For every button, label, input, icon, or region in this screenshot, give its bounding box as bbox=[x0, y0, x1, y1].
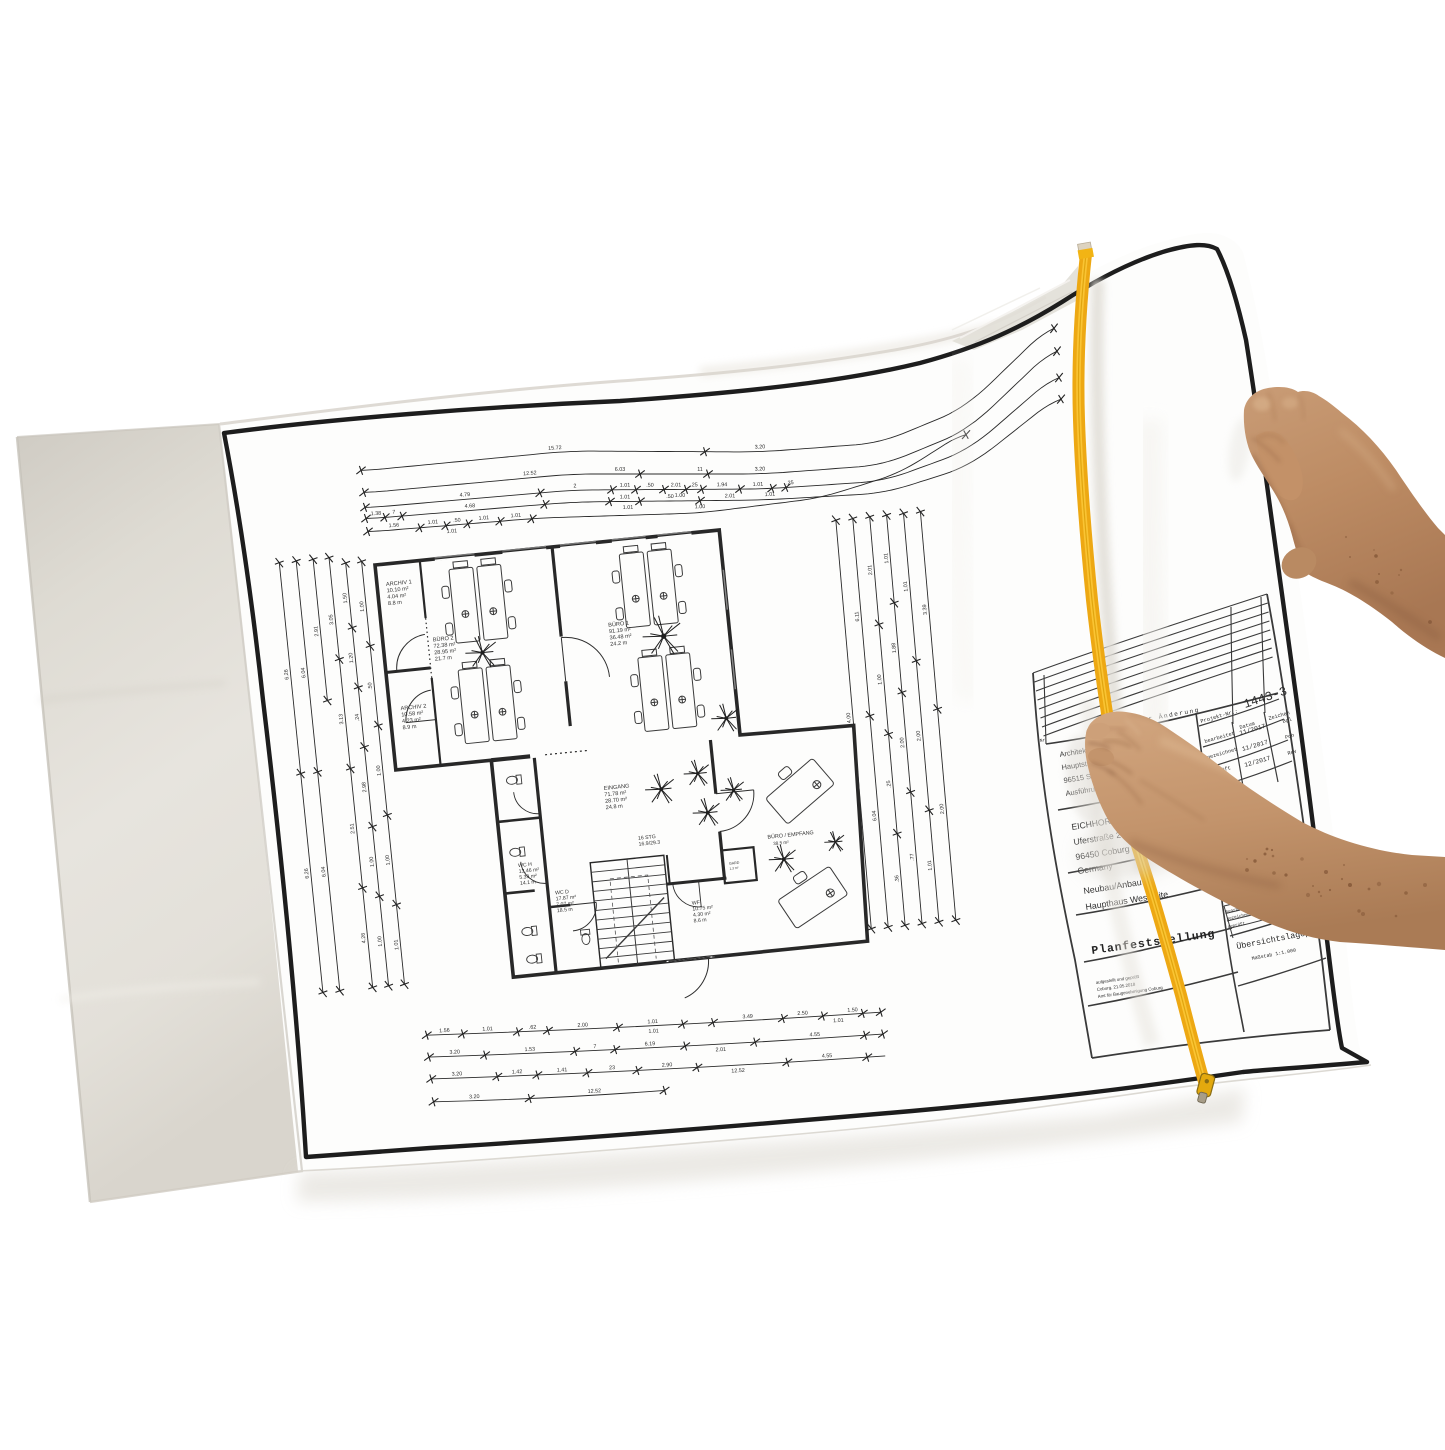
svg-text:6.04: 6.04 bbox=[871, 810, 878, 821]
svg-text:.25: .25 bbox=[690, 482, 698, 488]
svg-text:1.56: 1.56 bbox=[439, 1028, 450, 1035]
svg-text:6.03: 6.03 bbox=[615, 467, 626, 473]
svg-text:1.00: 1.00 bbox=[385, 855, 392, 866]
svg-text:1.01: 1.01 bbox=[648, 1028, 659, 1035]
svg-text:1.56: 1.56 bbox=[388, 522, 399, 529]
svg-text:12.52: 12.52 bbox=[731, 1068, 745, 1075]
svg-text:4.26: 4.26 bbox=[361, 932, 368, 943]
svg-text:2.01: 2.01 bbox=[715, 1047, 726, 1054]
svg-text:7: 7 bbox=[392, 510, 395, 516]
svg-text:.77: .77 bbox=[909, 853, 916, 861]
svg-text:.36: .36 bbox=[894, 875, 901, 883]
svg-text:1.42: 1.42 bbox=[512, 1069, 523, 1076]
svg-text:7: 7 bbox=[593, 1044, 596, 1050]
svg-text:4.55: 4.55 bbox=[809, 1032, 820, 1039]
svg-text:1.01: 1.01 bbox=[647, 1019, 658, 1026]
svg-text:2.90: 2.90 bbox=[662, 1062, 673, 1069]
svg-text:12.52: 12.52 bbox=[588, 1088, 602, 1095]
svg-text:.50: .50 bbox=[453, 518, 461, 525]
svg-text:2.00: 2.00 bbox=[899, 737, 906, 748]
svg-text:1.53: 1.53 bbox=[524, 1047, 535, 1054]
svg-text:1.00: 1.00 bbox=[675, 493, 686, 499]
svg-text:3.39: 3.39 bbox=[922, 604, 929, 615]
svg-text:1.01: 1.01 bbox=[478, 515, 489, 522]
svg-text:1.00: 1.00 bbox=[695, 504, 706, 510]
svg-text:2.98: 2.98 bbox=[361, 782, 368, 793]
svg-text:4.79: 4.79 bbox=[459, 492, 470, 499]
svg-text:6.26: 6.26 bbox=[304, 868, 311, 879]
svg-text:11: 11 bbox=[697, 467, 703, 473]
svg-text:1.01: 1.01 bbox=[833, 1018, 844, 1025]
svg-text:1.94: 1.94 bbox=[717, 482, 728, 488]
svg-text:3.49: 3.49 bbox=[742, 1014, 753, 1021]
svg-text:1.50: 1.50 bbox=[847, 1007, 858, 1014]
svg-text:1.50: 1.50 bbox=[342, 593, 349, 604]
svg-text:1.20: 1.20 bbox=[348, 652, 355, 663]
svg-text:.50: .50 bbox=[666, 494, 674, 500]
svg-text:3.20: 3.20 bbox=[449, 1049, 460, 1056]
svg-text:3.13: 3.13 bbox=[338, 714, 345, 725]
svg-text:1.00: 1.00 bbox=[359, 601, 366, 612]
svg-text:2: 2 bbox=[573, 483, 576, 489]
svg-text:.24: .24 bbox=[354, 713, 361, 721]
svg-text:2.00: 2.00 bbox=[939, 803, 946, 814]
svg-text:6.04: 6.04 bbox=[321, 866, 328, 877]
svg-text:.50: .50 bbox=[367, 682, 374, 690]
svg-text:1.38: 1.38 bbox=[371, 511, 382, 518]
svg-text:6.04: 6.04 bbox=[301, 667, 308, 678]
svg-text:2.91: 2.91 bbox=[313, 626, 320, 637]
svg-text:2.00: 2.00 bbox=[577, 1022, 588, 1029]
svg-text:23: 23 bbox=[609, 1065, 615, 1071]
svg-text:3.20: 3.20 bbox=[755, 444, 766, 450]
svg-text:2.01: 2.01 bbox=[725, 493, 736, 499]
svg-text:.50: .50 bbox=[646, 483, 654, 489]
svg-text:1.01: 1.01 bbox=[620, 494, 631, 500]
svg-text:6.26: 6.26 bbox=[284, 669, 291, 680]
svg-text:6.19: 6.19 bbox=[645, 1041, 656, 1048]
svg-text:1.01: 1.01 bbox=[903, 581, 910, 592]
svg-text:2.00: 2.00 bbox=[916, 730, 923, 741]
svg-text:6.11: 6.11 bbox=[854, 611, 861, 622]
svg-text:1.01: 1.01 bbox=[927, 860, 934, 871]
svg-text:.25: .25 bbox=[786, 480, 794, 486]
svg-text:.62: .62 bbox=[529, 1025, 537, 1031]
svg-text:1.01: 1.01 bbox=[623, 505, 634, 511]
svg-text:3.20: 3.20 bbox=[452, 1071, 463, 1078]
svg-text:2.51: 2.51 bbox=[350, 823, 357, 834]
svg-text:1.01: 1.01 bbox=[620, 483, 631, 489]
svg-text:4.68: 4.68 bbox=[464, 503, 475, 510]
svg-text:12.52: 12.52 bbox=[523, 470, 537, 477]
svg-text:1.41: 1.41 bbox=[557, 1067, 568, 1074]
svg-text:1.00: 1.00 bbox=[377, 936, 384, 947]
svg-text:1.00: 1.00 bbox=[877, 674, 884, 685]
svg-text:4.55: 4.55 bbox=[822, 1053, 833, 1060]
svg-text:1.01: 1.01 bbox=[427, 519, 438, 526]
svg-text:2.01: 2.01 bbox=[671, 482, 682, 488]
svg-text:3.20: 3.20 bbox=[755, 466, 766, 472]
svg-text:1.00: 1.00 bbox=[376, 765, 383, 776]
svg-text:1.01: 1.01 bbox=[482, 1026, 493, 1033]
svg-text:15.72: 15.72 bbox=[548, 445, 562, 452]
svg-text:.25: .25 bbox=[886, 780, 893, 788]
svg-text:1.01: 1.01 bbox=[765, 492, 776, 498]
svg-text:2.50: 2.50 bbox=[797, 1011, 808, 1018]
svg-text:1.01: 1.01 bbox=[446, 528, 457, 535]
svg-text:1.00: 1.00 bbox=[369, 856, 376, 867]
svg-text:1.01: 1.01 bbox=[393, 939, 400, 950]
svg-text:1.88: 1.88 bbox=[891, 642, 898, 653]
svg-text:1.01: 1.01 bbox=[753, 482, 764, 488]
svg-text:3.05: 3.05 bbox=[328, 614, 335, 625]
svg-text:1.01: 1.01 bbox=[510, 513, 521, 520]
svg-text:1.01: 1.01 bbox=[883, 553, 890, 564]
svg-text:2.01: 2.01 bbox=[867, 564, 874, 575]
svg-text:4.00: 4.00 bbox=[846, 712, 853, 723]
svg-text:3.20: 3.20 bbox=[469, 1094, 480, 1101]
